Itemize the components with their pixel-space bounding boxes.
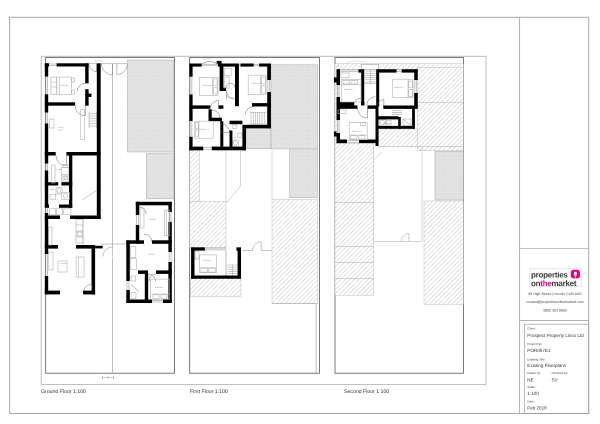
svg-text:Landing: Landing [226,96,233,99]
svg-text:Bedroom 2: Bedroom 2 [203,84,214,87]
svg-text:Feb 2018: Feb 2018 [527,405,547,410]
svg-text:Bedroom 3: Bedroom 3 [199,128,210,131]
svg-text:0800 303 8600: 0800 303 8600 [543,309,566,313]
svg-text:Bath: Bath [50,188,54,191]
svg-text:Bedroom 3: Bedroom 3 [352,130,363,133]
svg-text:4.57 x 3.1: 4.57 x 3.1 [203,58,213,61]
svg-text:Drawing Title:: Drawing Title: [527,357,545,361]
svg-text:Bedroom 1: Bedroom 1 [344,88,355,91]
svg-text:POR067E1: POR067E1 [527,348,551,353]
svg-text:Kitchen: Kitchen [148,253,155,256]
svg-text:Bathroom: Bathroom [383,122,392,125]
svg-text:Lounge: Lounge [149,218,157,221]
svg-text:NE: NE [527,378,533,383]
svg-text:Second Floor 1:100: Second Floor 1:100 [344,389,389,395]
svg-text:Ground Floor 1:100: Ground Floor 1:100 [41,389,86,395]
svg-text:Scale:: Scale: [527,385,536,389]
svg-text:60 High Street | Lincoln | LN5: 60 High Street | Lincoln | LN5 8AD [528,292,582,296]
svg-text:1:100: 1:100 [527,391,539,396]
svg-text:Drawn by:: Drawn by: [527,371,541,375]
svg-text:Prospect Property Lincs Ltd: Prospect Property Lincs Ltd [527,333,584,338]
svg-text:Bedroom: Bedroom [60,84,68,87]
svg-text:Bath: Bath [232,136,236,139]
svg-text:Lounge: Lounge [60,262,68,265]
svg-text:Kitchen: Kitchen [55,168,62,171]
svg-text:Room: Room [58,129,64,132]
svg-text:onthemarket: onthemarket [531,279,577,288]
svg-text:SV: SV [552,378,559,383]
svg-text:Existing Floorplans: Existing Floorplans [527,363,567,368]
svg-text:Client:: Client: [527,326,536,330]
svg-text:Checked by:: Checked by: [552,371,569,375]
svg-text:Bedroom: Bedroom [155,286,163,289]
svg-text:Bedroom: Bedroom [203,259,211,262]
svg-text:Project No:: Project No: [527,342,542,346]
svg-text:First Floor 1:100: First Floor 1:100 [190,389,228,395]
svg-text:contact@propertiesonthemarket.: contact@propertiesonthemarket.com [526,300,584,304]
svg-text:Date:: Date: [527,400,534,404]
svg-text:Bedroom 2: Bedroom 2 [394,86,405,89]
svg-text:4.57 x 3.1: 4.57 x 3.1 [95,60,105,63]
svg-text:Bedroom 1: Bedroom 1 [252,82,263,85]
